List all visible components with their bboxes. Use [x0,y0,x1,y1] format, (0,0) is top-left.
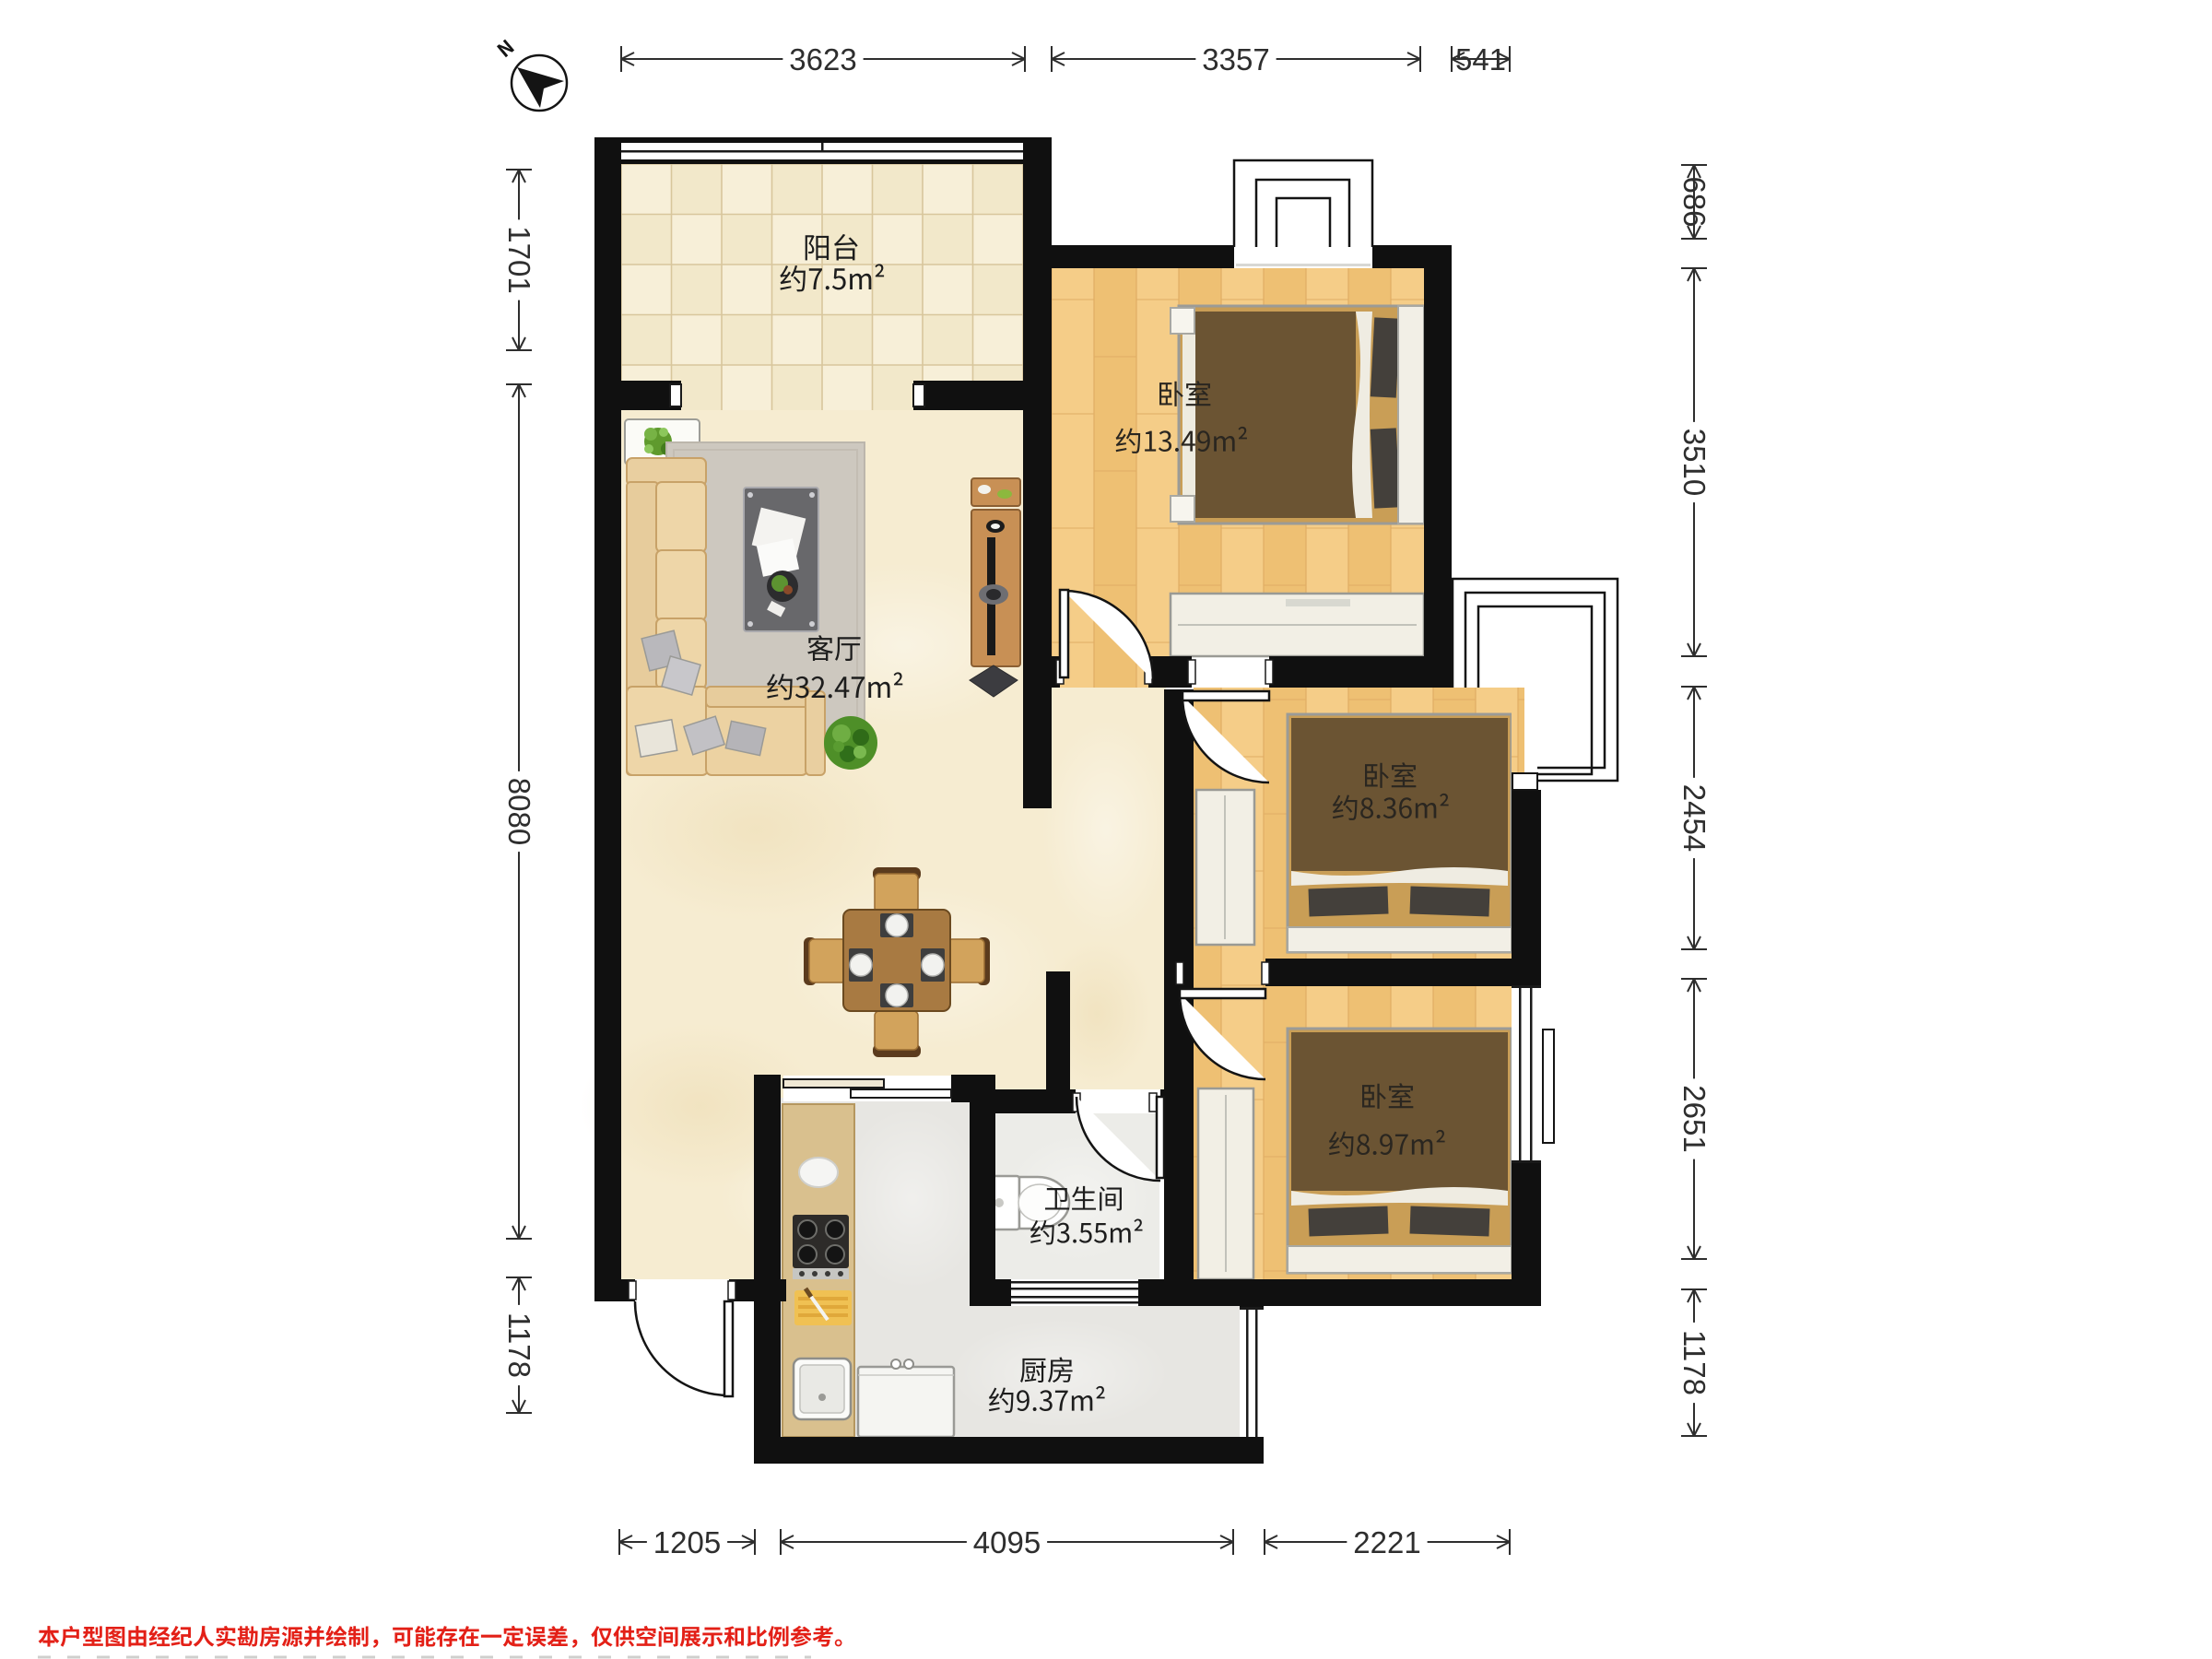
svg-text:1178: 1178 [1677,1330,1712,1395]
svg-text:8080: 8080 [502,778,536,845]
svg-text:1178: 1178 [502,1312,536,1378]
svg-text:1205: 1205 [653,1525,721,1559]
svg-text:3623: 3623 [789,42,856,76]
svg-text:4095: 4095 [973,1525,1041,1559]
svg-text:2651: 2651 [1677,1085,1712,1152]
svg-text:2221: 2221 [1353,1525,1420,1559]
svg-text:1701: 1701 [502,226,536,293]
svg-text:2454: 2454 [1677,784,1712,852]
svg-text:541: 541 [1455,42,1506,76]
svg-text:686: 686 [1677,176,1712,227]
svg-text:3357: 3357 [1202,42,1269,76]
svg-text:3510: 3510 [1677,429,1712,496]
